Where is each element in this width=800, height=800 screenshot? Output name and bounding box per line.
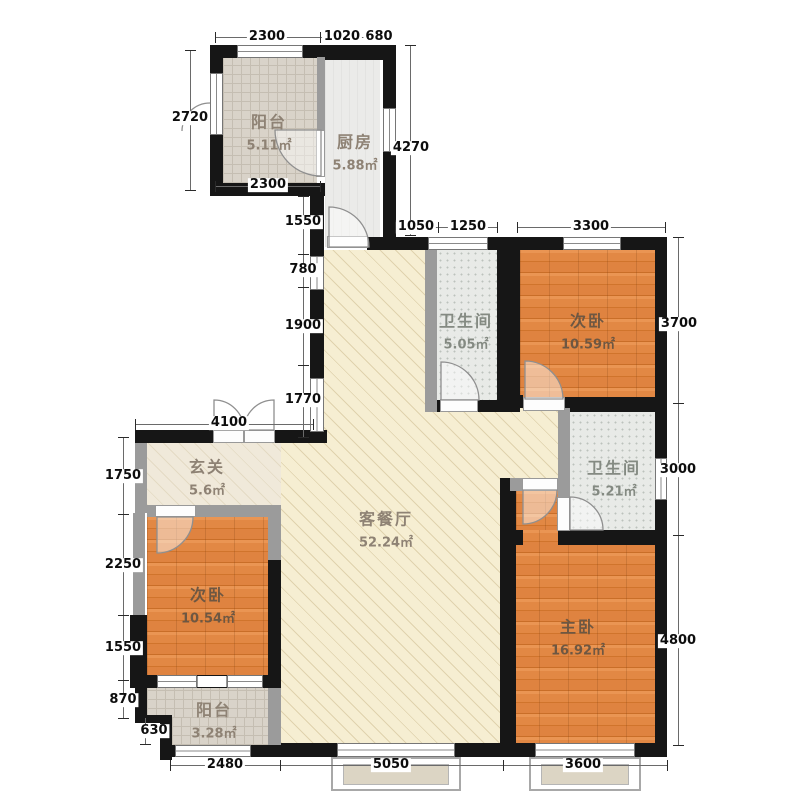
room-name: 阳台 [191, 697, 236, 721]
floor-plan: 2300 1020 680 1050 1250 3300 2720 1550 7… [0, 0, 800, 800]
room-label-bedroom-ne: 次卧 10.59㎡ [561, 308, 615, 353]
dimension-label: 1550 [103, 641, 143, 655]
dimension-tick [405, 235, 416, 236]
room-name: 次卧 [181, 582, 235, 606]
room-label-bedroom-west: 次卧 10.54㎡ [181, 582, 235, 627]
dimension-tick [320, 32, 321, 43]
dimension-tick [118, 615, 129, 616]
room-name: 次卧 [561, 308, 615, 332]
dimension-tick [673, 745, 684, 746]
dimension-label: 3600 [563, 758, 603, 772]
dimension-label: 3000 [658, 463, 698, 477]
room-name: 阳台 [246, 109, 291, 133]
dimension-tick [298, 365, 309, 366]
dimension-tick [298, 254, 309, 255]
dimension-label: 1900 [283, 319, 323, 333]
room-area: 5.6㎡ [189, 480, 225, 499]
dimension-tick [667, 760, 668, 771]
dimension-label: 1250 [448, 220, 488, 234]
room-label-balcony-north: 阳台 5.11㎡ [246, 109, 291, 154]
dimension-tick [313, 419, 314, 430]
room-name: 卫生间 [587, 455, 641, 479]
dimension-tick [298, 196, 309, 197]
bedroom-west-door-swing-arc [157, 517, 193, 553]
dimension-label: 2250 [103, 558, 143, 572]
bath-east-door-swing-arc [570, 497, 603, 530]
room-label-bath-north: 卫生间 5.05㎡ [439, 308, 493, 353]
dimension-label: 2480 [205, 758, 245, 772]
dimension-tick [405, 45, 416, 46]
dimension-tick [135, 419, 136, 430]
master-door-swing-arc [523, 490, 557, 524]
kitchen-door-swing-arc [329, 207, 369, 247]
room-name: 主卧 [551, 614, 605, 638]
dimension-tick [118, 680, 129, 681]
room-label-bath-east: 卫生间 5.21㎡ [587, 455, 641, 500]
dimension-tick [118, 437, 129, 438]
dimension-tick [673, 237, 684, 238]
room-area: 5.21㎡ [587, 481, 641, 500]
dimension-tick [665, 222, 666, 233]
dimension-label: 870 [107, 693, 138, 707]
dimension-label: 1050 [396, 220, 436, 234]
dimension-label: 5050 [371, 758, 411, 772]
room-area: 5.05㎡ [439, 334, 493, 353]
dimension-tick [215, 181, 216, 192]
dimension-label: 4800 [658, 634, 698, 648]
dimension-tick [503, 760, 504, 771]
dimension-label: 1020 [322, 30, 362, 44]
room-name: 厨房 [332, 129, 377, 153]
dimension-label: 2720 [170, 111, 210, 125]
dimension-label: 1750 [103, 469, 143, 483]
dimension-label: 4100 [209, 416, 249, 430]
dimension-label: 2300 [247, 30, 287, 44]
dimension-tick [215, 32, 216, 43]
bath-north-door-swing-arc [441, 362, 479, 400]
dimension-tick [438, 222, 439, 233]
dimension-tick [320, 181, 321, 192]
room-label-foyer: 玄关 5.6㎡ [189, 454, 225, 499]
dimension-tick [298, 437, 309, 438]
dimension-label: 2300 [248, 178, 288, 192]
room-label-master-bedroom: 主卧 16.92㎡ [551, 614, 605, 659]
dimension-tick [118, 514, 129, 515]
bedroom-ne-door-swing-arc [525, 361, 563, 399]
room-area: 3.28㎡ [191, 723, 236, 742]
dimension-tick [185, 50, 196, 51]
dimension-tick [140, 744, 151, 745]
dimension-label: 630 [138, 724, 169, 738]
room-area: 5.11㎡ [246, 135, 291, 154]
room-area: 5.88㎡ [332, 155, 377, 174]
dimension-tick [517, 222, 518, 233]
dimension-tick [280, 760, 281, 771]
room-area: 52.24㎡ [359, 532, 413, 551]
dimension-tick [497, 222, 498, 233]
room-name: 卫生间 [439, 308, 493, 332]
room-label-kitchen: 厨房 5.88㎡ [332, 129, 377, 174]
room-area: 10.54㎡ [181, 608, 235, 627]
dimension-label: 3700 [659, 317, 699, 331]
dimension-label: 3300 [571, 220, 611, 234]
dimension-tick [673, 403, 684, 404]
dimension-tick [185, 190, 196, 191]
room-label-balcony-south: 阳台 3.28㎡ [191, 697, 236, 742]
dimension-tick [298, 287, 309, 288]
room-name: 玄关 [189, 454, 225, 478]
dimension-label: 1770 [283, 393, 323, 407]
dimension-line [678, 237, 679, 745]
dimension-label: 1550 [283, 215, 323, 229]
dimension-tick [118, 718, 129, 719]
room-area: 16.92㎡ [551, 640, 605, 659]
dimension-label: 780 [287, 263, 318, 277]
dimension-tick [170, 760, 171, 771]
dimension-label: 4270 [391, 141, 431, 155]
room-area: 10.59㎡ [561, 334, 615, 353]
room-label-living-dining: 客餐厅 52.24㎡ [359, 506, 413, 551]
room-name: 客餐厅 [359, 506, 413, 530]
dimension-tick [673, 535, 684, 536]
dimension-label: 680 [363, 30, 394, 44]
